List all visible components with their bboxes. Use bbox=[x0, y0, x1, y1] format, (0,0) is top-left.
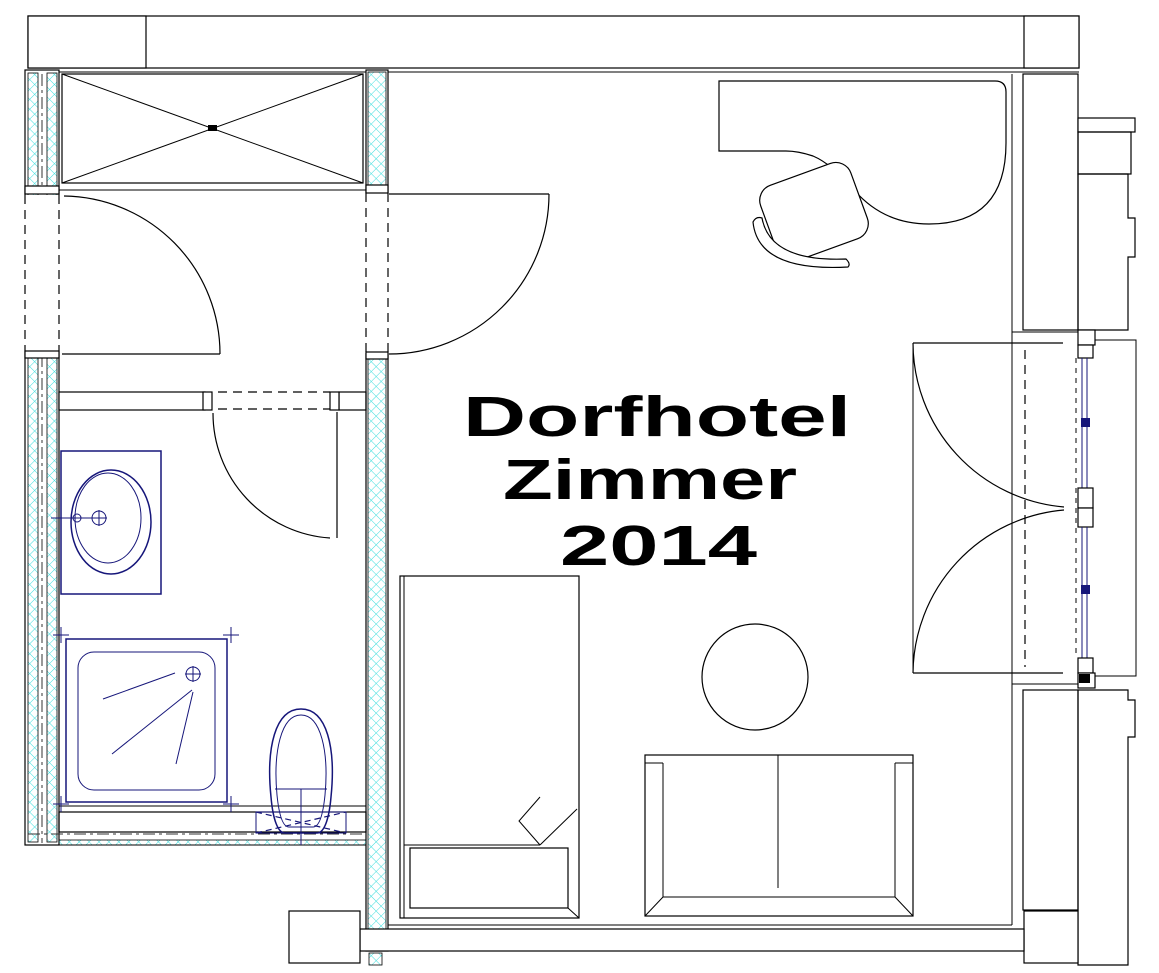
bed-footboard bbox=[410, 848, 568, 908]
bath-bottom-strip bbox=[59, 840, 366, 845]
french-door-arc-top bbox=[913, 343, 1064, 507]
washbasin bbox=[51, 451, 161, 594]
bathroom-front-wall bbox=[59, 190, 366, 410]
plan-title: Dorfhotel Zimmer 2014 bbox=[463, 385, 851, 578]
top-wall-anchor-left-bg bbox=[28, 16, 146, 68]
left-wall-cap-upper bbox=[25, 186, 59, 194]
bath-bottom-insulation bbox=[59, 812, 366, 832]
right-wall-outer-block bbox=[1078, 118, 1135, 132]
bottom-wall-anchor-left-bg bbox=[289, 911, 360, 963]
title-line-1: Dorfhotel bbox=[463, 385, 851, 449]
door-handle-bottom bbox=[1081, 585, 1090, 594]
bathroom-door bbox=[213, 412, 337, 538]
entrance-door-arc bbox=[389, 194, 549, 354]
wardrobe bbox=[62, 74, 363, 183]
right-exterior-wall bbox=[1012, 74, 1135, 965]
floor-plan-drawing: Dorfhotel Zimmer 2014 bbox=[0, 0, 1159, 973]
french-door-arc-bottom bbox=[913, 510, 1064, 673]
wardrobe-center-mark bbox=[208, 125, 217, 131]
bottom-exterior-wall bbox=[289, 911, 1024, 963]
bathroom-door-arc bbox=[213, 413, 330, 538]
right-wall-outer-masonry bbox=[1078, 132, 1131, 174]
toilet bbox=[256, 709, 346, 845]
sofa-corner-left bbox=[645, 897, 663, 916]
blanket-fold-diagonal bbox=[540, 809, 577, 845]
bath-wall-right bbox=[339, 392, 366, 410]
shower-drain-cross bbox=[185, 666, 201, 682]
bed-frame bbox=[400, 576, 579, 918]
top-wall-masonry-hatch bbox=[28, 16, 1079, 68]
title-line-2: Zimmer bbox=[503, 448, 797, 512]
left-wall-cap-lower bbox=[25, 351, 59, 358]
partition-door-opening bbox=[364, 193, 390, 353]
door-handle-top bbox=[1081, 418, 1090, 427]
bath-wall-left-bg bbox=[59, 392, 205, 410]
partition-cap-upper bbox=[366, 185, 388, 193]
window-frame-block-4 bbox=[1078, 508, 1093, 527]
room-entrance-door bbox=[389, 194, 549, 354]
floor-plan-sheet: Dorfhotel Zimmer 2014 bbox=[0, 0, 1159, 973]
washbasin-bowl-outer bbox=[71, 470, 151, 574]
exterior-insulation-upper bbox=[1078, 174, 1135, 330]
blanket-fold-flap bbox=[519, 797, 540, 845]
table-top bbox=[702, 624, 808, 730]
window-sill-block bbox=[1079, 674, 1090, 683]
round-table bbox=[702, 624, 808, 730]
partition-foot-block bbox=[369, 953, 382, 965]
balcony-slab bbox=[1095, 340, 1136, 676]
sofa bbox=[645, 755, 913, 916]
shower-outer bbox=[66, 639, 227, 802]
top-wall-anchor-right-bg bbox=[1024, 16, 1079, 68]
top-exterior-wall bbox=[28, 16, 1079, 72]
left-wall-opening bbox=[23, 195, 61, 351]
balcony-french-doors bbox=[913, 330, 1136, 688]
left-partition-wall bbox=[23, 70, 61, 845]
sofa-corner-right bbox=[895, 897, 913, 916]
sofa-outline bbox=[645, 755, 913, 916]
right-wall-lower bbox=[1023, 690, 1078, 910]
shower-spray-lines bbox=[103, 673, 193, 764]
window-frame-block-1 bbox=[1078, 330, 1095, 345]
shower-tray bbox=[53, 627, 239, 812]
bed bbox=[400, 576, 579, 918]
title-line-3: 2014 bbox=[560, 514, 757, 578]
shower-inner bbox=[78, 652, 215, 790]
washbasin-counter bbox=[61, 451, 161, 594]
center-partition-wall bbox=[364, 70, 390, 965]
bottom-wall-bg bbox=[360, 929, 1024, 951]
hall-door-arc bbox=[64, 196, 220, 354]
partition-cap-lower bbox=[366, 352, 388, 359]
bath-door-jamb-right bbox=[330, 392, 339, 410]
footboard-corner-tick bbox=[568, 908, 579, 918]
exterior-insulation-lower bbox=[1078, 690, 1135, 965]
hall-door bbox=[62, 196, 220, 354]
right-wall-anchor-bottom-bg bbox=[1024, 911, 1078, 963]
window-frame-block-3 bbox=[1078, 488, 1093, 508]
window-frame-block-2 bbox=[1078, 345, 1093, 358]
window-frame-block-5 bbox=[1078, 658, 1093, 673]
drain-cross bbox=[91, 510, 107, 526]
right-wall-upper bbox=[1023, 74, 1078, 330]
bath-door-jamb-left bbox=[203, 392, 212, 410]
